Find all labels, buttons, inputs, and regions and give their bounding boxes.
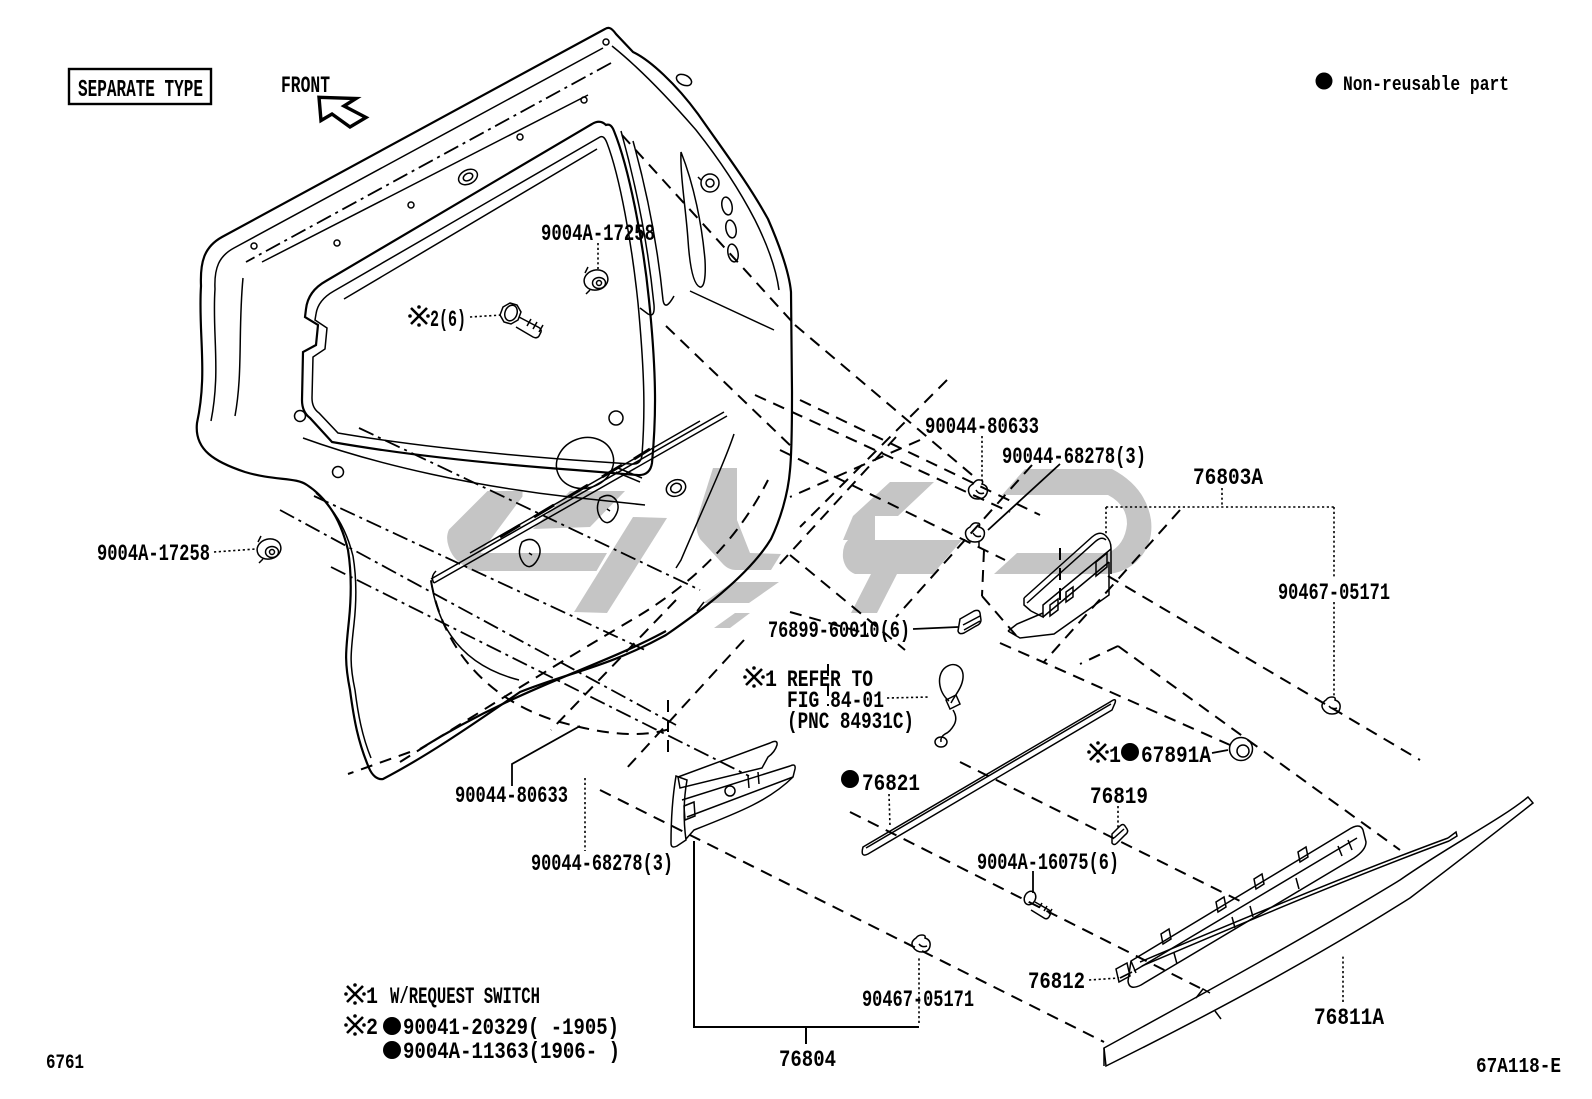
svg-text:90467-05171: 90467-05171 [1278, 580, 1390, 606]
svg-text:SEPARATE TYPE: SEPARATE TYPE [78, 77, 203, 104]
svg-text:90467-05171: 90467-05171 [862, 987, 974, 1013]
svg-text:90044-80633: 90044-80633 [455, 783, 568, 809]
svg-text:2(6): 2(6) [430, 307, 466, 333]
svg-text:Non-reusable part: Non-reusable part [1343, 74, 1509, 97]
svg-text:9004A-17258: 9004A-17258 [97, 541, 210, 567]
svg-text:9004A-11363(1906- ): 9004A-11363(1906- ) [403, 1039, 620, 1065]
svg-text:76803A: 76803A [1193, 465, 1263, 491]
svg-text:90044-68278(3): 90044-68278(3) [531, 851, 673, 877]
svg-text:76899-60010(6): 76899-60010(6) [768, 618, 910, 644]
svg-text:67891A: 67891A [1141, 743, 1211, 769]
svg-text:76804: 76804 [779, 1047, 836, 1073]
svg-text:76819: 76819 [1090, 784, 1148, 810]
svg-text:1: 1 [366, 984, 378, 1010]
svg-text:2: 2 [366, 1015, 378, 1041]
svg-text:9004A-17258: 9004A-17258 [541, 221, 655, 247]
svg-text:FRONT: FRONT [281, 73, 330, 99]
svg-text:(PNC 84931C): (PNC 84931C) [787, 709, 914, 735]
svg-text:1: 1 [1109, 743, 1121, 769]
svg-text:W/REQUEST SWITCH: W/REQUEST SWITCH [390, 984, 540, 1010]
svg-text:90044-68278(3): 90044-68278(3) [1002, 444, 1146, 470]
svg-text:1: 1 [765, 667, 777, 693]
svg-text:76811A: 76811A [1314, 1005, 1384, 1031]
svg-text:9004A-16075(6): 9004A-16075(6) [977, 850, 1119, 876]
svg-text:6761: 6761 [46, 1052, 84, 1075]
svg-text:90044-80633: 90044-80633 [925, 414, 1039, 440]
svg-text:76812: 76812 [1028, 969, 1085, 995]
svg-text:67A118-E: 67A118-E [1476, 1056, 1561, 1079]
svg-text:76821: 76821 [862, 771, 920, 797]
svg-text:90041-20329( -1905): 90041-20329( -1905) [403, 1015, 619, 1041]
